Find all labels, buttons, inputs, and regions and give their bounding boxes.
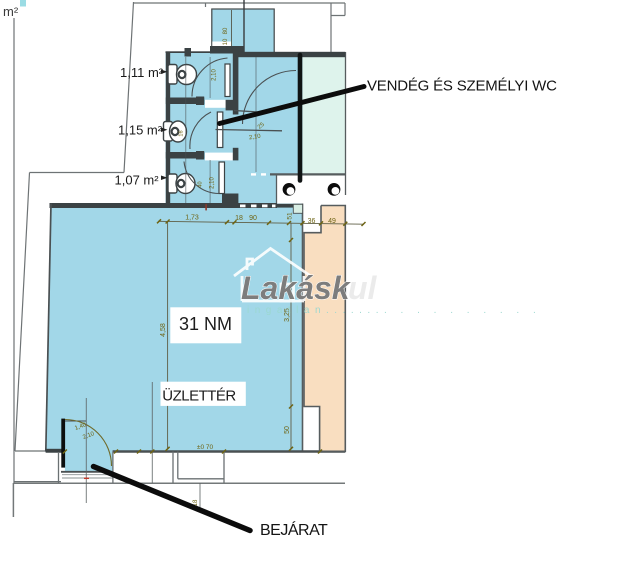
svg-text:1,73: 1,73 [185,215,199,222]
svg-text:16: 16 [179,130,185,136]
svg-text:1,11 m²: 1,11 m² [120,65,164,80]
svg-text:90: 90 [249,215,257,222]
svg-text:18: 18 [235,215,243,222]
svg-text:2,10: 2,10 [210,177,216,189]
svg-text:4,58: 4,58 [160,323,167,337]
svg-text:m²: m² [3,4,19,19]
svg-text:1,15 m²: 1,15 m² [118,123,163,138]
svg-text:1,07 m²: 1,07 m² [115,173,160,188]
svg-text:ul: ul [348,270,378,306]
svg-text:80: 80 [223,27,229,34]
svg-text:Lakásk: Lakásk [241,270,352,306]
svg-text:49: 49 [328,218,336,225]
svg-text:ÜZLETTÉR: ÜZLETTÉR [162,387,236,405]
svg-text:BEJÁRAT: BEJÁRAT [260,520,328,539]
svg-text:ingatlan........ . . . . . . .: ingatlan........ . . . . . . . . . [247,305,541,316]
svg-text:40: 40 [198,181,204,187]
svg-text:10: 10 [223,38,229,45]
svg-text:36: 36 [308,218,316,225]
svg-text:±0 70: ±0 70 [197,444,214,451]
svg-text:51: 51 [287,212,294,220]
svg-text:2,10: 2,10 [212,69,218,81]
svg-text:50: 50 [284,426,291,434]
svg-text:31 NM: 31 NM [179,314,232,334]
svg-text:VENDÉG ÉS SZEMÉLYI WC: VENDÉG ÉS SZEMÉLYI WC [367,78,557,95]
